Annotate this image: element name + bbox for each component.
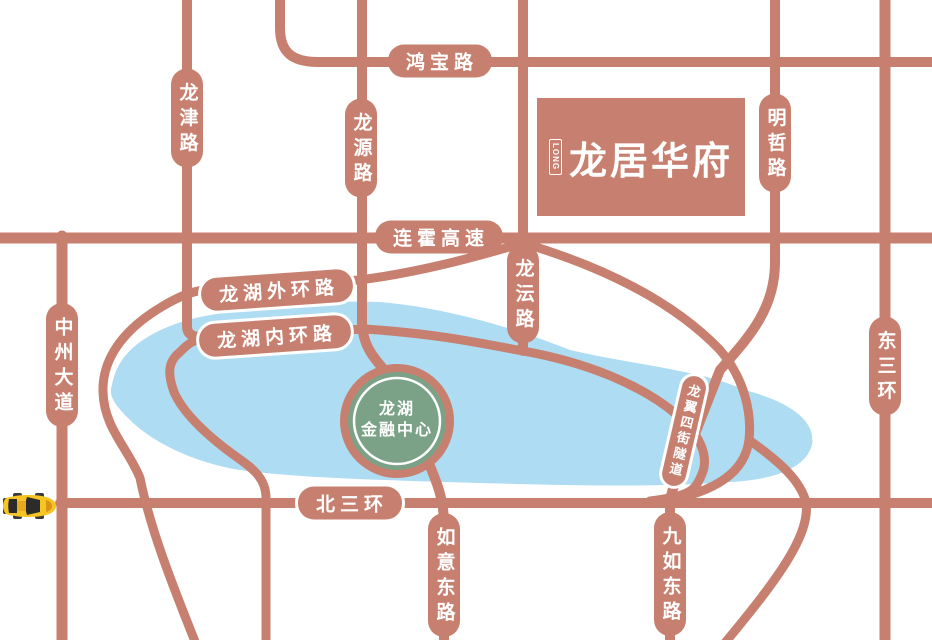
road-label-longyun: 龙沄路 — [507, 245, 539, 344]
map-canvas — [0, 0, 932, 640]
car-icon — [1, 490, 57, 522]
road-label-longjin: 龙津路 — [171, 69, 203, 168]
road-label-hongbao: 鸿宝路 — [388, 45, 492, 78]
project-name: 龙居华府 — [569, 130, 733, 185]
road-label-jiuru: 九如东路 — [654, 512, 686, 636]
road-label-beisanhuan: 北三环 — [298, 487, 402, 520]
road-label-ruyi: 如意东路 — [428, 513, 460, 637]
road-label-lianhuo: 连霍高速 — [375, 221, 503, 254]
road-label-mingzhe: 明哲路 — [759, 94, 791, 193]
road-label-longyuan: 龙源路 — [345, 99, 377, 198]
road-label-dongsanhuan: 东三环 — [869, 317, 901, 416]
road-label-zhongzhou: 中州大道 — [46, 303, 78, 427]
road-hongbao — [280, 0, 932, 62]
financial-center-label: 龙湖 金融中心 — [361, 400, 433, 442]
financial-center-label-line2: 金融中心 — [361, 421, 433, 442]
logo-seal-mark: LONG — [549, 139, 562, 174]
location-map: LONG 龙居华府 鸿宝路 连霍高速 龙湖外环路 龙湖内环路 北三环 龙津路 龙… — [0, 0, 932, 640]
project-logo-plate: LONG 龙居华府 — [537, 98, 745, 216]
financial-center-label-line1: 龙湖 — [361, 400, 433, 421]
